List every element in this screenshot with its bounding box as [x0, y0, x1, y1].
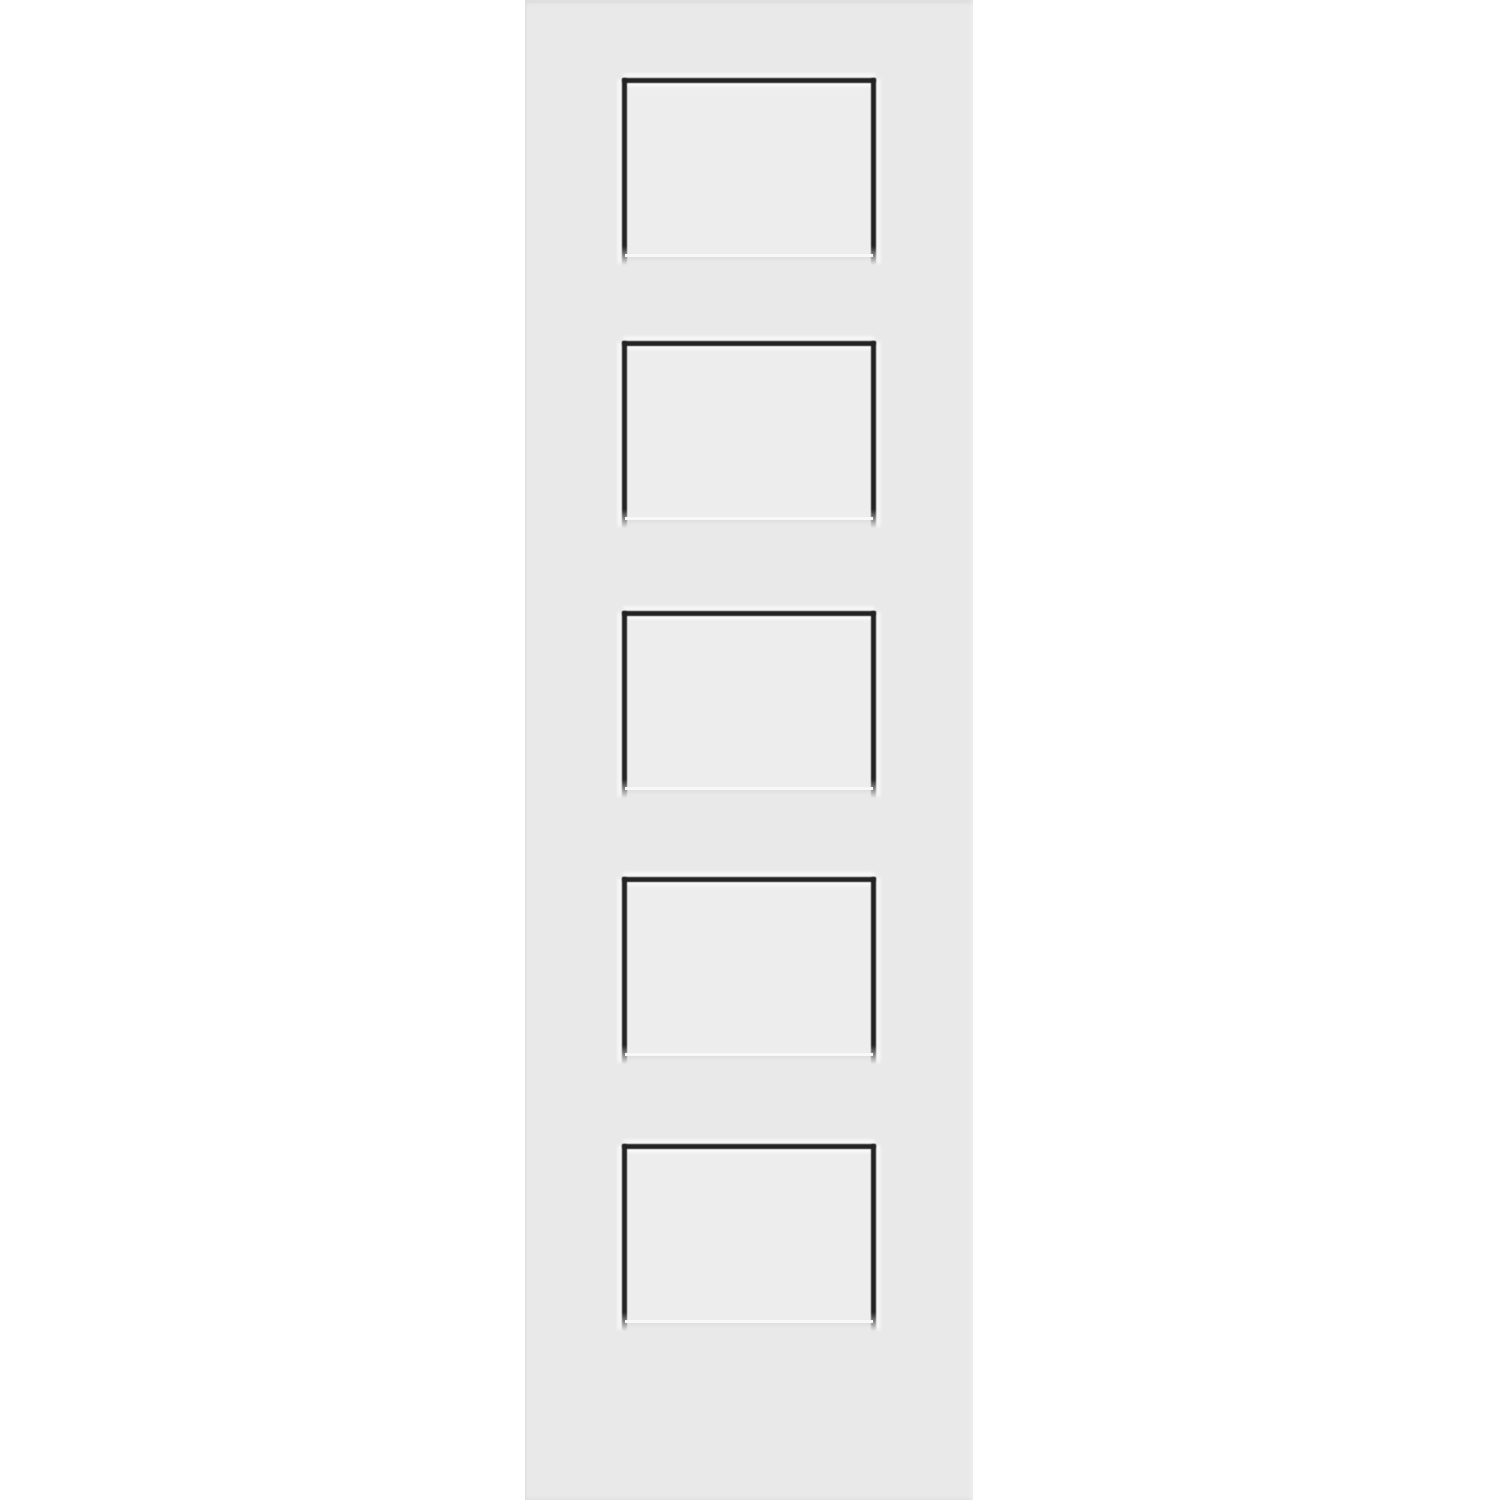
panel-groove-top	[622, 611, 876, 616]
panel-groove-right	[871, 78, 876, 265]
panel-groove-left	[622, 611, 627, 798]
panel-groove-top	[622, 1144, 876, 1149]
panel-groove-left	[622, 1144, 627, 1331]
panel-groove-left	[622, 78, 627, 265]
panel-bottom-edge	[625, 1320, 873, 1323]
panel-groove-right	[871, 1144, 876, 1331]
door-panel-5	[622, 1144, 876, 1331]
product-image	[0, 0, 1500, 1500]
panel-groove-top	[622, 78, 876, 83]
panel-bottom-edge	[625, 787, 873, 790]
panel-bottom-edge	[625, 1053, 873, 1056]
panel-field	[627, 346, 871, 517]
panel-groove-right	[871, 877, 876, 1064]
panel-groove-top	[622, 877, 876, 882]
door-panel-1	[622, 78, 876, 265]
door-panel-3	[622, 611, 876, 798]
panel-groove-right	[871, 341, 876, 528]
panel-groove-top	[622, 341, 876, 346]
panel-field	[627, 616, 871, 787]
panel-field	[627, 882, 871, 1053]
panel-groove-right	[871, 611, 876, 798]
panel-field	[627, 1149, 871, 1320]
panel-field	[627, 83, 871, 254]
panel-bottom-edge	[625, 254, 873, 257]
door-panel-4	[622, 877, 876, 1064]
panel-groove-left	[622, 877, 627, 1064]
panel-bottom-edge	[625, 517, 873, 520]
panel-groove-left	[622, 341, 627, 528]
door-slab	[525, 0, 973, 1500]
door-panel-2	[622, 341, 876, 528]
